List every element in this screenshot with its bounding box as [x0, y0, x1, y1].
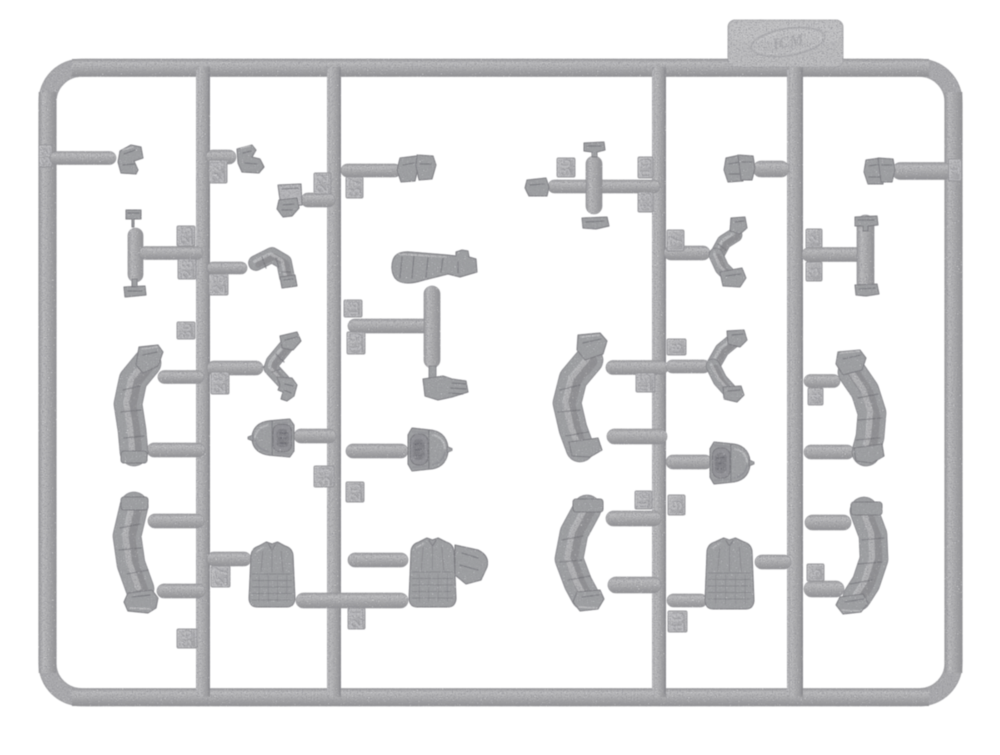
svg-text:21: 21 — [346, 609, 366, 629]
svg-text:37: 37 — [344, 178, 364, 198]
svg-text:20: 20 — [345, 483, 364, 502]
svg-text:18: 18 — [345, 301, 361, 317]
svg-text:27: 27 — [210, 567, 230, 587]
svg-text:10: 10 — [636, 159, 655, 178]
svg-text:26: 26 — [209, 373, 230, 394]
svg-text:30: 30 — [178, 323, 194, 339]
svg-text:16: 16 — [635, 492, 652, 509]
svg-text:25: 25 — [176, 227, 195, 246]
svg-text:2: 2 — [805, 235, 822, 244]
svg-text:15: 15 — [637, 374, 654, 392]
svg-text:28: 28 — [177, 260, 196, 279]
svg-text:36: 36 — [178, 630, 195, 648]
svg-text:10: 10 — [667, 612, 687, 632]
svg-text:13: 13 — [636, 193, 655, 212]
svg-text:7: 7 — [665, 236, 685, 246]
svg-text:1: 1 — [946, 167, 963, 175]
svg-text:24: 24 — [207, 160, 229, 183]
svg-text:30: 30 — [557, 159, 574, 177]
svg-text:3: 3 — [805, 268, 822, 277]
svg-text:5: 5 — [807, 569, 823, 577]
svg-text:23: 23 — [208, 275, 228, 295]
svg-text:33: 33 — [314, 467, 334, 487]
svg-text:19: 19 — [345, 333, 366, 354]
svg-text:4: 4 — [807, 393, 823, 401]
svg-text:8: 8 — [669, 344, 684, 351]
svg-text:22: 22 — [312, 174, 332, 194]
svg-text:9: 9 — [667, 501, 686, 510]
